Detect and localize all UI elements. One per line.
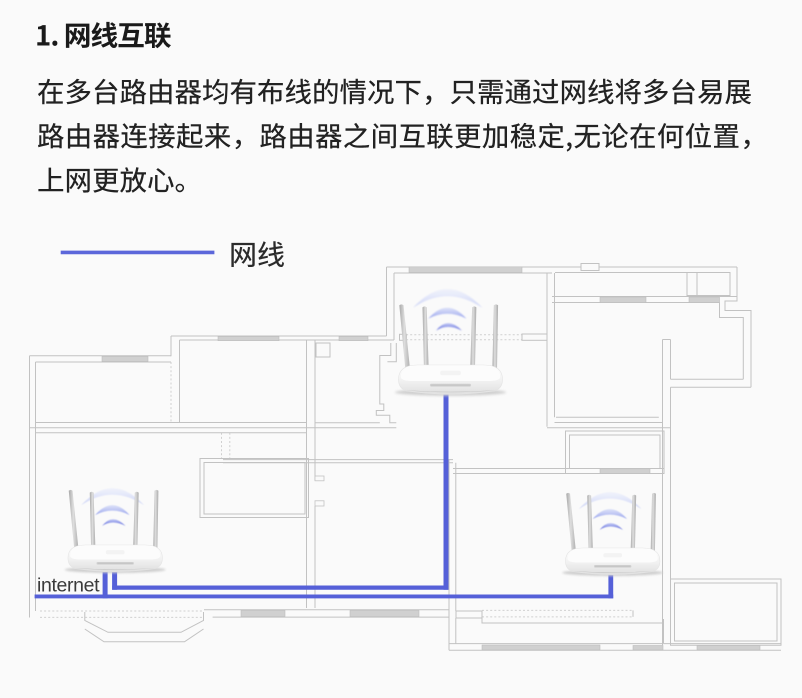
svg-text:internet: internet <box>37 575 100 597</box>
